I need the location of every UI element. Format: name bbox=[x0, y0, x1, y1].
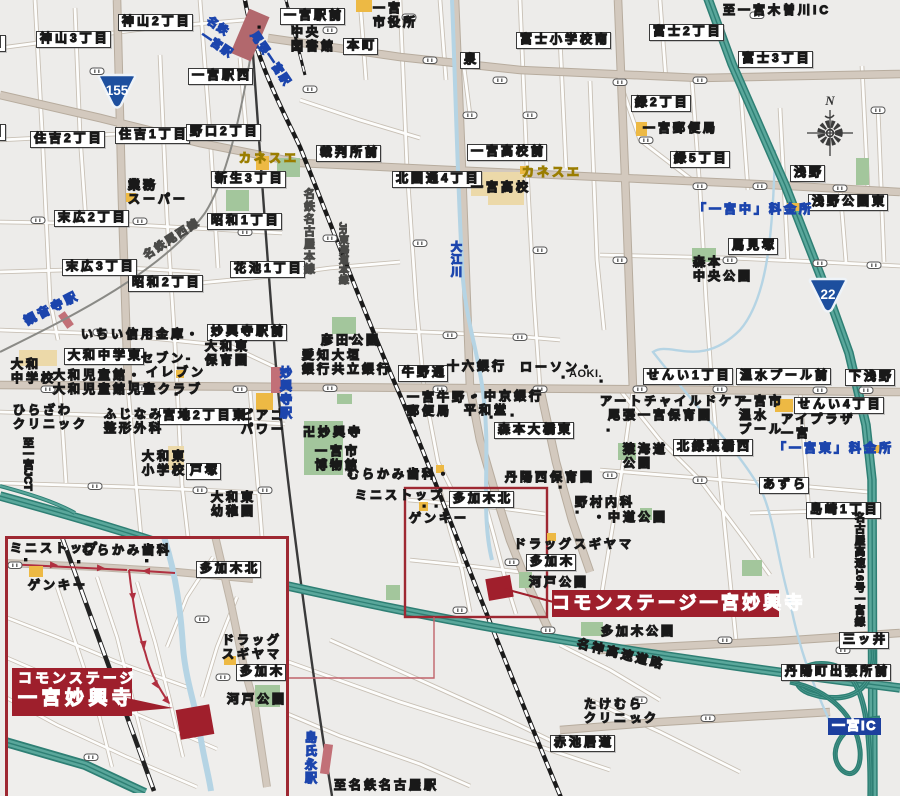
svg-text:22: 22 bbox=[820, 287, 835, 302]
svg-text:N: N bbox=[824, 93, 835, 108]
svg-text:155: 155 bbox=[106, 83, 129, 98]
